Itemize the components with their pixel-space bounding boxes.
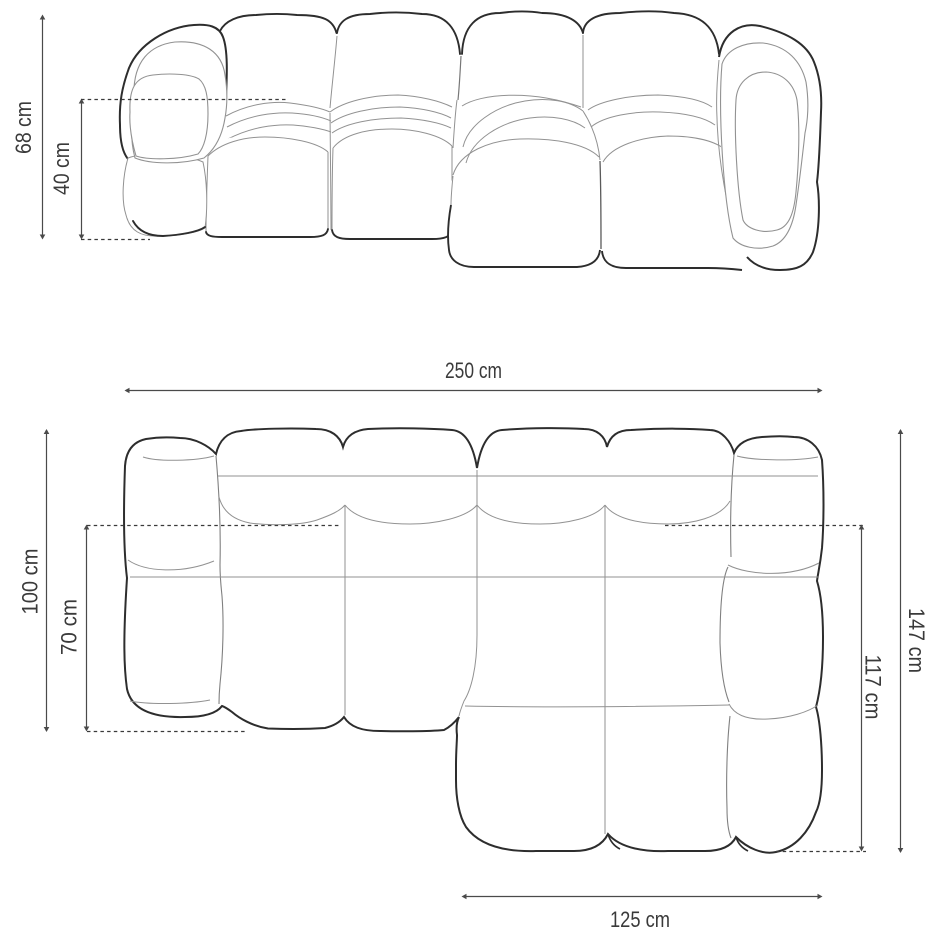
svg-text:70 cm: 70 cm xyxy=(57,599,82,655)
svg-text:125 cm: 125 cm xyxy=(610,907,670,932)
svg-text:68 cm: 68 cm xyxy=(11,101,36,154)
svg-text:147 cm: 147 cm xyxy=(904,608,929,673)
svg-text:100 cm: 100 cm xyxy=(18,549,43,615)
svg-text:250 cm: 250 cm xyxy=(445,358,502,383)
svg-text:117 cm: 117 cm xyxy=(861,655,886,720)
svg-text:40 cm: 40 cm xyxy=(49,142,74,195)
